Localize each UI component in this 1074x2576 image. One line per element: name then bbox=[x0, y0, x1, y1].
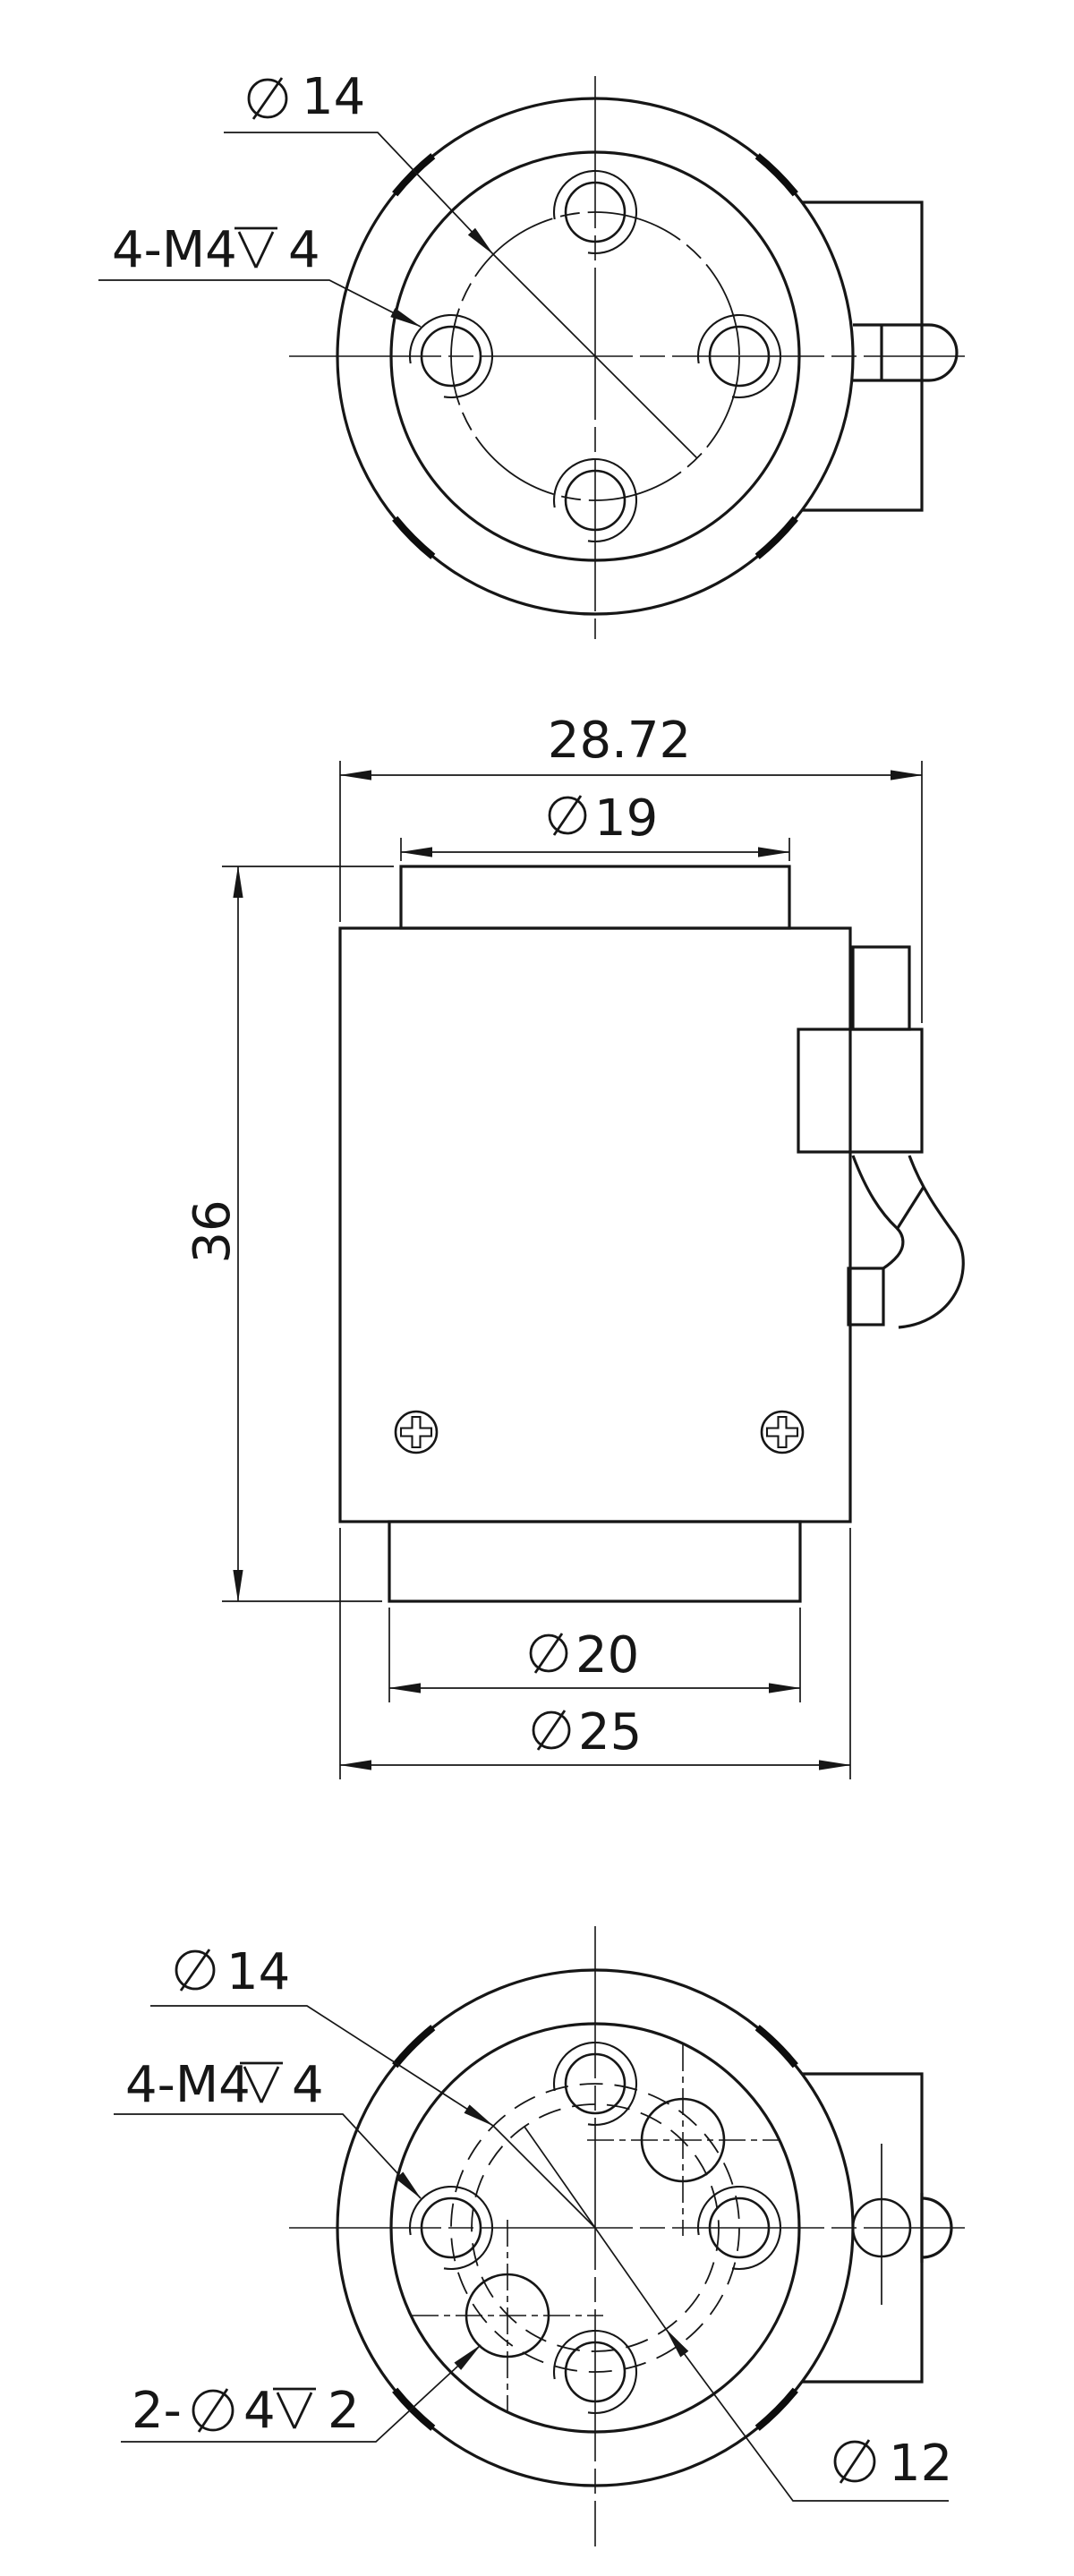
diameter-symbol-icon bbox=[531, 1633, 567, 1673]
cable-outer-curve bbox=[899, 1156, 963, 1327]
connector-block bbox=[798, 1029, 922, 1152]
serration-mark-sw bbox=[395, 518, 433, 557]
overall-width-value: 28.72 bbox=[548, 712, 691, 770]
serration-mark-se bbox=[757, 2390, 796, 2428]
bolt-circle-dia-value: 14 bbox=[302, 68, 365, 126]
body-dia-value: 25 bbox=[578, 1703, 642, 1761]
serration-mark-nw bbox=[395, 2027, 433, 2066]
diameter-symbol-icon bbox=[835, 2440, 874, 2483]
diameter-symbol-icon bbox=[249, 78, 286, 119]
diameter-symbol-icon bbox=[176, 1949, 214, 1991]
top-boss bbox=[401, 866, 789, 928]
leader-line bbox=[224, 132, 493, 254]
cable-end-fitting bbox=[848, 1268, 883, 1325]
screw-right bbox=[762, 1412, 803, 1453]
phillips-slot-icon bbox=[401, 1417, 431, 1447]
connector-pin bbox=[853, 325, 957, 380]
phillips-slot-icon bbox=[767, 1417, 797, 1447]
diameter-symbol-icon bbox=[550, 796, 585, 835]
depth-symbol-v-right bbox=[294, 2393, 311, 2428]
pin-dome bbox=[929, 325, 957, 380]
boss-dia-value: 19 bbox=[594, 789, 658, 848]
bottom-view: 14 4-M4 4 2- 4 2 bbox=[114, 1926, 965, 2546]
serration-mark-ne bbox=[757, 2027, 796, 2066]
diameter-symbol-icon bbox=[193, 2389, 233, 2432]
small-hole-upper-right bbox=[587, 2044, 779, 2236]
top-tapped-holes-callout: 4-M4 4 bbox=[98, 221, 421, 327]
leader-line bbox=[98, 280, 421, 327]
screw-left bbox=[396, 1412, 437, 1453]
bottom-hub bbox=[389, 1522, 800, 1601]
bolt-circle-dia-value: 14 bbox=[226, 1943, 290, 2001]
dim-hub-dia: 20 bbox=[389, 1608, 800, 1702]
serration-mark-sw bbox=[395, 2390, 433, 2428]
serration-mark-ne bbox=[757, 156, 796, 194]
tapped-holes-depth-value: 4 bbox=[292, 2056, 324, 2114]
technical-drawing: 14 4-M4 4 bbox=[0, 0, 1074, 2572]
hub-dia-value: 20 bbox=[575, 1626, 639, 1685]
depth-symbol-icon bbox=[234, 228, 277, 268]
drawing-page: 14 4-M4 4 bbox=[0, 0, 1074, 2572]
dim-height: 36 bbox=[183, 866, 394, 1601]
bolt-circle-radius-line bbox=[493, 2126, 595, 2228]
front-view: 28.72 19 36 bbox=[183, 712, 963, 1779]
hole-circle-callout: 12 bbox=[524, 2127, 952, 2501]
cable-edge-line bbox=[898, 1187, 924, 1228]
depth-symbol-v-left bbox=[239, 232, 256, 268]
cable-gland bbox=[853, 947, 909, 1029]
top-view: 14 4-M4 4 bbox=[98, 68, 965, 639]
tapped-holes-spec: 4-M4 bbox=[112, 221, 237, 279]
dim-boss-dia: 19 bbox=[401, 789, 789, 861]
bottom-tapped-holes-callout: 4-M4 4 bbox=[114, 2056, 421, 2198]
diameter-symbol-slash bbox=[840, 2440, 869, 2483]
tapped-holes-depth-value: 4 bbox=[288, 221, 320, 279]
tapped-holes-spec: 4-M4 bbox=[125, 2056, 251, 2114]
main-body bbox=[340, 928, 850, 1522]
diameter-symbol-slash bbox=[199, 2389, 227, 2432]
height-value: 36 bbox=[183, 1199, 242, 1263]
small-holes-dia-value: 4 bbox=[243, 2382, 276, 2440]
depth-symbol-v-right bbox=[261, 2067, 278, 2103]
depth-symbol-v-right bbox=[256, 232, 273, 268]
depth-symbol-icon bbox=[273, 2389, 316, 2428]
cable-inner-curve bbox=[853, 1156, 903, 1268]
small-holes-depth-value: 2 bbox=[328, 2382, 360, 2440]
hole-circle-dia-value: 12 bbox=[889, 2435, 952, 2493]
diameter-symbol-icon bbox=[533, 1710, 569, 1750]
serration-mark-nw bbox=[395, 156, 433, 194]
small-holes-count: 2- bbox=[132, 2382, 182, 2440]
serration-mark-se bbox=[757, 518, 796, 557]
cable-hook bbox=[848, 1156, 963, 1327]
leader-line bbox=[114, 2114, 421, 2198]
depth-symbol-v-left bbox=[277, 2393, 294, 2428]
